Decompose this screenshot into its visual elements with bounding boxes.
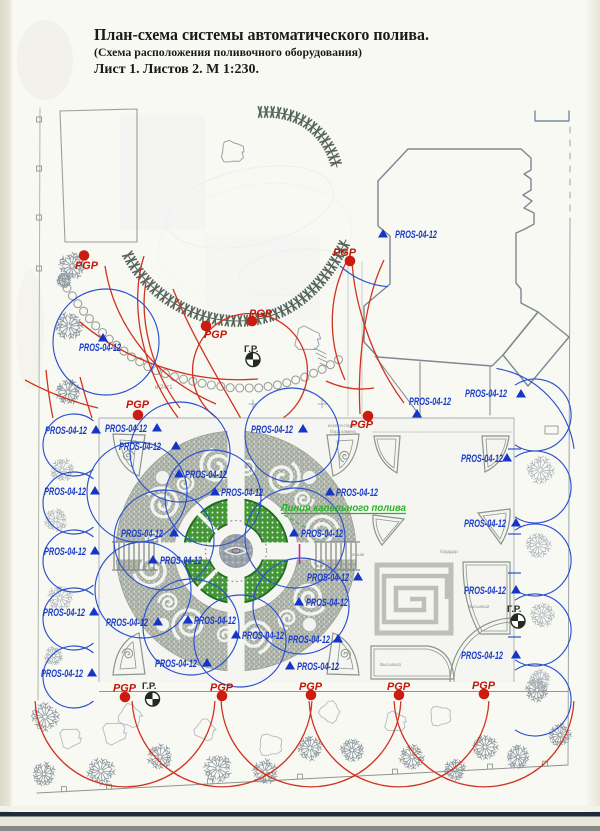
svg-text:пошаг: пошаг xyxy=(352,552,365,557)
svg-text:PROS-04-12: PROS-04-12 xyxy=(185,469,228,481)
svg-text:PGP: PGP xyxy=(472,680,496,692)
svg-text:PROS-04-12: PROS-04-12 xyxy=(251,424,294,436)
svg-text:PROS-04-12: PROS-04-12 xyxy=(43,607,86,619)
svg-text:(Схема расположения поливочног: (Схема расположения поливочного оборудов… xyxy=(94,45,362,59)
svg-text:PROS-04-12: PROS-04-12 xyxy=(221,487,264,499)
svg-text:PGP: PGP xyxy=(350,419,374,431)
svg-text:PROS-04-12: PROS-04-12 xyxy=(465,388,508,400)
svg-text:Линия капельного полива: Линия капельного полива xyxy=(280,502,406,514)
svg-text:PROS-04-12: PROS-04-12 xyxy=(41,668,84,680)
svg-text:PROS-04-12: PROS-04-12 xyxy=(461,650,504,662)
svg-text:PGP: PGP xyxy=(210,682,234,694)
svg-text:борддор: борддор xyxy=(440,549,458,554)
svg-text:PGP: PGP xyxy=(126,399,150,411)
svg-text:Г.Р.: Г.Р. xyxy=(507,604,521,615)
svg-text:PGP: PGP xyxy=(333,247,357,259)
svg-text:PROS-04-12: PROS-04-12 xyxy=(155,658,198,670)
svg-text:PROS-04-12: PROS-04-12 xyxy=(336,487,379,499)
svg-text:Высыпка1: Высыпка1 xyxy=(380,662,402,667)
svg-text:PROS-04-12: PROS-04-12 xyxy=(288,634,331,646)
svg-text:PROS-04-12: PROS-04-12 xyxy=(409,396,452,408)
svg-text:PROS-04-12: PROS-04-12 xyxy=(121,528,164,540)
svg-text:PROS-04-12: PROS-04-12 xyxy=(194,615,237,627)
svg-text:PROS-04-12: PROS-04-12 xyxy=(79,342,122,354)
svg-text:PGP: PGP xyxy=(204,329,228,341)
svg-text:PROS-04-12: PROS-04-12 xyxy=(395,229,438,241)
svg-text:PROS-04-12: PROS-04-12 xyxy=(301,528,344,540)
svg-text:PROS-04-12: PROS-04-12 xyxy=(242,630,285,642)
svg-text:PROS-04-12: PROS-04-12 xyxy=(160,555,203,567)
svg-text:PROS-04-12: PROS-04-12 xyxy=(105,423,148,435)
svg-text:PROS-04-12: PROS-04-12 xyxy=(106,617,149,629)
svg-text:PROS-04-12: PROS-04-12 xyxy=(464,518,507,530)
svg-text:PGP: PGP xyxy=(387,681,411,693)
svg-text:PROS-04-12: PROS-04-12 xyxy=(306,597,349,609)
svg-text:PGP: PGP xyxy=(113,683,137,695)
svg-text:PROS-04-12: PROS-04-12 xyxy=(44,546,87,558)
svg-text:PROS-04-12: PROS-04-12 xyxy=(45,425,88,437)
svg-text:PROS-04-12: PROS-04-12 xyxy=(307,572,350,584)
svg-text:PGP: PGP xyxy=(299,681,323,693)
svg-text:PROS-04-12: PROS-04-12 xyxy=(44,486,87,498)
svg-text:PROS-04-12: PROS-04-12 xyxy=(464,585,507,597)
svg-text:PGP: PGP xyxy=(75,260,99,272)
svg-text:PROS-04-12: PROS-04-12 xyxy=(297,661,340,673)
svg-text:PROS-04-12: PROS-04-12 xyxy=(119,441,162,453)
svg-text:Г.Р.: Г.Р. xyxy=(244,344,258,355)
svg-text:Лист 1. Листов 2. М 1:230.: Лист 1. Листов 2. М 1:230. xyxy=(94,62,259,77)
svg-text:PGP: PGP xyxy=(249,308,273,320)
svg-text:PROS-04-12: PROS-04-12 xyxy=(461,453,504,465)
svg-text:План-схема системы автоматичес: План-схема системы автоматического полив… xyxy=(94,25,429,44)
svg-text:Высыпка2: Высыпка2 xyxy=(468,604,490,609)
svg-text:Г.Р.: Г.Р. xyxy=(142,681,156,692)
